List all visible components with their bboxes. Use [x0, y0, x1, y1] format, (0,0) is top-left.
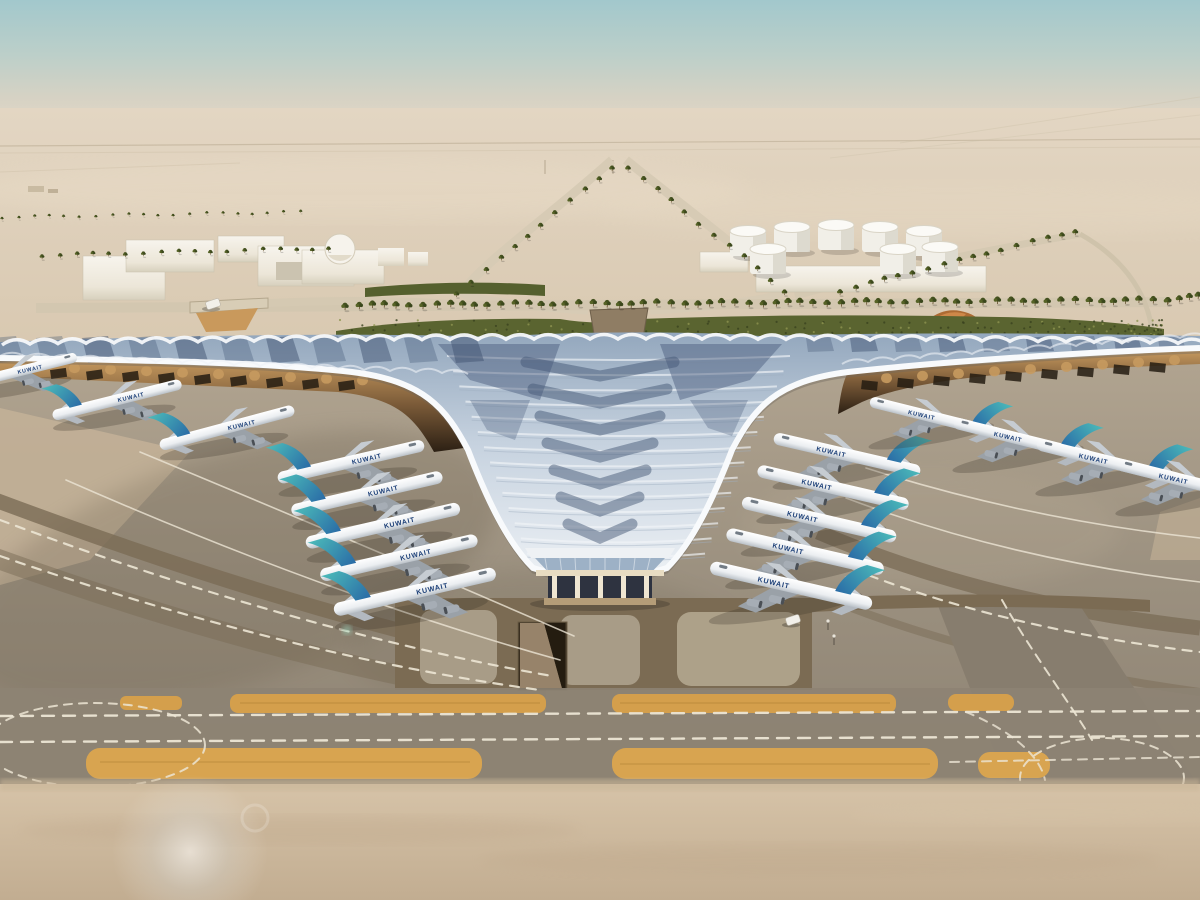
scene-image: Aerial rendering of a desert airport: tr… — [0, 0, 1200, 900]
airport-aerial-rendering: Aerial rendering of a desert airport: tr… — [0, 0, 1200, 900]
lens-flare-dot — [342, 625, 352, 635]
sky — [0, 0, 1200, 122]
storage-tank — [818, 220, 859, 256]
distant-structure — [28, 186, 44, 192]
warehouse — [126, 240, 214, 272]
tunnel-ramp — [518, 622, 567, 690]
storage-tank — [750, 244, 791, 280]
